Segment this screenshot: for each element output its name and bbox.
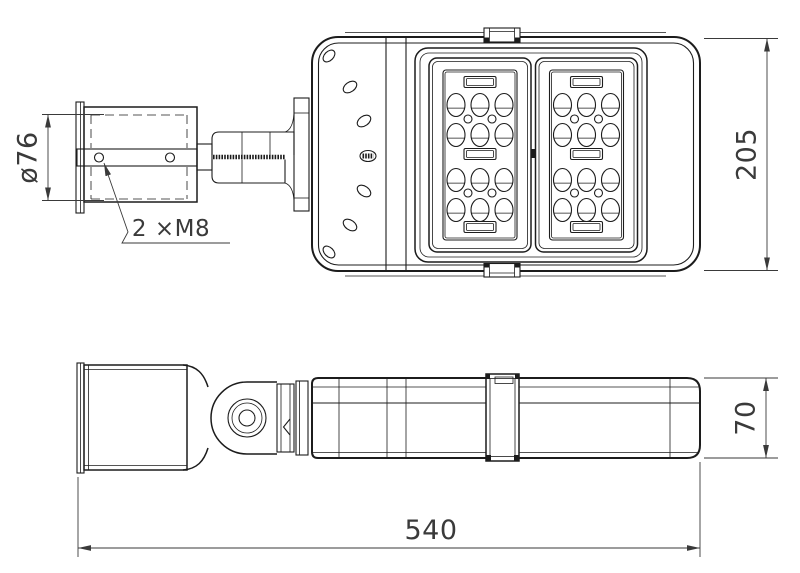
dim-label-housing-width: 205 — [732, 128, 763, 181]
dimension-overall-length: 540 — [78, 462, 700, 557]
dim-label-clamp-diameter: ø76 — [13, 131, 44, 183]
pivot-bolt — [239, 410, 255, 426]
dimension-clamp-diameter: ø76 — [13, 115, 105, 201]
clamp-sleeve — [84, 107, 197, 202]
joint-clamp-plate — [277, 384, 294, 452]
arm-stub — [197, 144, 212, 170]
clamp-sleeve-side — [84, 365, 187, 470]
street-light-drawing: ø76 2 ×M8 205 — [0, 0, 800, 573]
module-gap-clip — [531, 149, 537, 158]
dimension-housing-width: 205 — [704, 39, 778, 271]
dim-label-overall-length: 540 — [404, 515, 457, 546]
callout-mount-holes: 2 ×M8 — [104, 163, 230, 243]
led-module-right — [536, 58, 638, 252]
top-view: ø76 2 ×M8 205 — [13, 28, 779, 277]
technical-drawing-canvas: ø76 2 ×M8 205 — [0, 0, 800, 573]
bottom-latch — [484, 264, 520, 278]
side-latch — [486, 374, 519, 461]
body-bracket-plate — [296, 381, 308, 455]
arm-mount-flange — [294, 98, 309, 211]
m8-bolt-hole — [166, 153, 175, 162]
dim-label-mount-holes: 2 ×M8 — [132, 216, 210, 242]
side-view: 70 540 — [77, 363, 778, 557]
hinge-arm-top — [197, 98, 309, 211]
pole-clamp-bracket-side — [77, 363, 208, 473]
top-latch — [484, 28, 520, 42]
breather-valve — [360, 151, 376, 162]
pivot-joint-side — [211, 381, 308, 455]
joint-housing — [211, 382, 277, 454]
clamp-hidden-bore — [91, 115, 187, 199]
led-optics — [415, 48, 647, 262]
luminaire-housing-side — [312, 374, 700, 461]
dim-label-housing-height: 70 — [731, 400, 762, 435]
dimension-housing-height: 70 — [704, 378, 778, 458]
vent-slots — [341, 79, 376, 233]
pivot-boss — [228, 399, 266, 437]
m8-bolt-hole — [95, 153, 104, 162]
led-module-left — [429, 58, 531, 252]
pole-clamp-bracket-top — [76, 102, 197, 213]
clamp-notch — [284, 419, 291, 435]
